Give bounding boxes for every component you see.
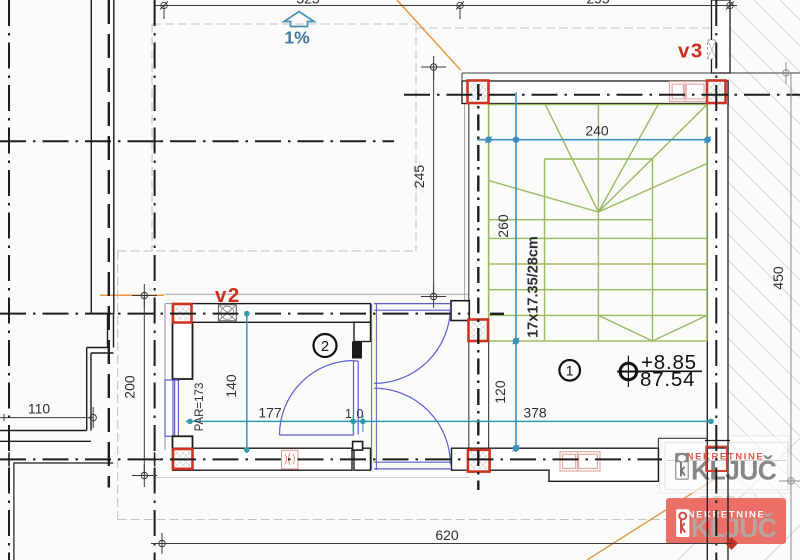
svg-text:KLJUČ: KLJUČ <box>691 513 777 543</box>
svg-text:620: 620 <box>435 527 459 543</box>
svg-text:10: 10 <box>345 407 368 421</box>
svg-text:450: 450 <box>770 266 786 290</box>
svg-text:140: 140 <box>223 374 239 398</box>
svg-text:245: 245 <box>411 165 427 189</box>
svg-text:v2: v2 <box>215 284 241 307</box>
svg-text:325: 325 <box>296 0 320 7</box>
svg-text:200: 200 <box>122 375 138 399</box>
svg-text:KLJUČ: KLJUČ <box>691 455 777 485</box>
svg-text:1%: 1% <box>284 28 310 48</box>
svg-text:2: 2 <box>321 339 329 355</box>
svg-text:87.54: 87.54 <box>640 368 695 391</box>
svg-text:240: 240 <box>585 123 609 139</box>
svg-text:PAR=173: PAR=173 <box>194 383 206 432</box>
svg-text:110: 110 <box>28 401 51 417</box>
svg-text:120: 120 <box>492 380 508 404</box>
svg-text:17x17.35/28cm: 17x17.35/28cm <box>526 236 542 338</box>
svg-text:260: 260 <box>495 214 511 238</box>
svg-text:1: 1 <box>566 363 574 379</box>
svg-text:v3: v3 <box>678 40 704 63</box>
svg-text:177: 177 <box>258 405 282 421</box>
svg-text:378: 378 <box>523 405 547 421</box>
svg-text:295: 295 <box>586 0 610 7</box>
